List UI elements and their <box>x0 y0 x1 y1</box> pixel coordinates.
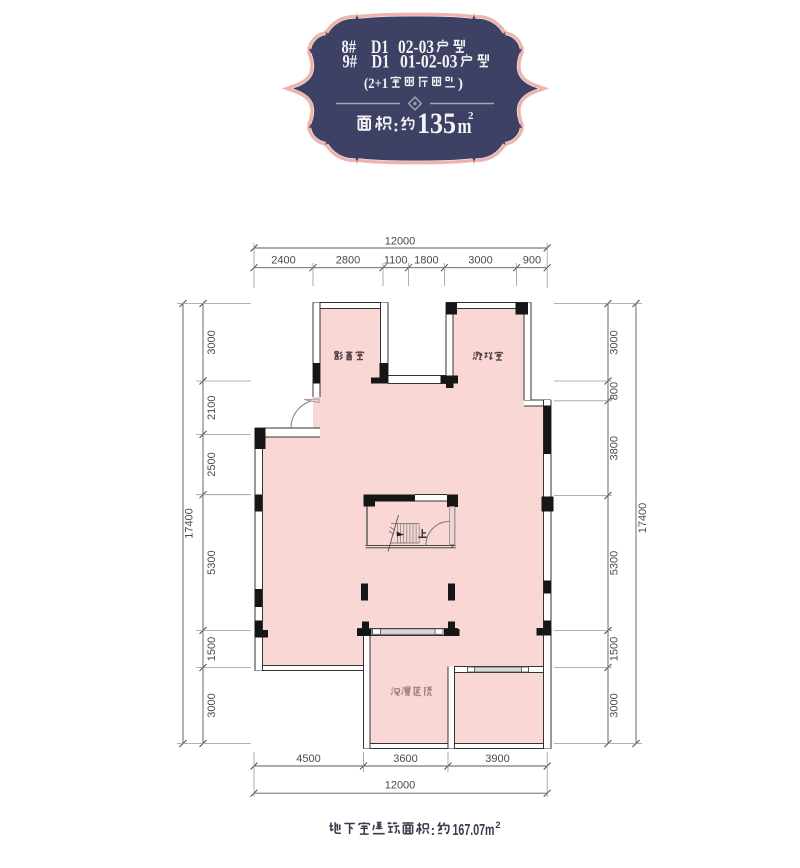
svg-text:17400: 17400 <box>184 508 196 539</box>
svg-text:17400: 17400 <box>637 503 649 534</box>
svg-text:5300: 5300 <box>609 551 621 575</box>
svg-text:3600: 3600 <box>393 753 417 765</box>
svg-text:3000: 3000 <box>206 330 218 354</box>
svg-text:167.07m: 167.07m <box>453 822 495 839</box>
svg-text:9#: 9# <box>343 52 358 73</box>
svg-text:1800: 1800 <box>414 255 438 267</box>
svg-text:3000: 3000 <box>468 255 492 267</box>
svg-text:2500: 2500 <box>206 452 218 476</box>
svg-text:3000: 3000 <box>206 693 218 717</box>
svg-text::: : <box>393 116 399 136</box>
svg-text:135: 135 <box>417 107 456 140</box>
svg-text:1100: 1100 <box>384 255 408 267</box>
svg-text:4500: 4500 <box>296 753 320 765</box>
svg-text::: : <box>431 822 436 838</box>
svg-text:01-02-03: 01-02-03 <box>400 52 458 73</box>
svg-text:(2+1: (2+1 <box>364 76 388 92</box>
svg-text:900: 900 <box>523 255 541 267</box>
svg-text:5300: 5300 <box>206 550 218 574</box>
svg-text:1500: 1500 <box>206 637 218 661</box>
svg-text:2800: 2800 <box>336 255 360 267</box>
svg-text:3000: 3000 <box>609 693 621 717</box>
svg-text:2400: 2400 <box>271 255 295 267</box>
svg-text:800: 800 <box>609 382 621 400</box>
svg-text:): ) <box>458 76 463 92</box>
svg-text:12000: 12000 <box>385 780 416 792</box>
svg-text:2: 2 <box>496 820 501 830</box>
svg-text:3900: 3900 <box>485 753 509 765</box>
svg-text:3000: 3000 <box>609 330 621 354</box>
svg-text:3800: 3800 <box>609 436 621 460</box>
svg-text:1500: 1500 <box>609 637 621 661</box>
svg-text:2: 2 <box>468 110 474 122</box>
svg-text:D1: D1 <box>372 52 390 73</box>
svg-text:12000: 12000 <box>385 236 416 248</box>
svg-text:2100: 2100 <box>206 395 218 419</box>
